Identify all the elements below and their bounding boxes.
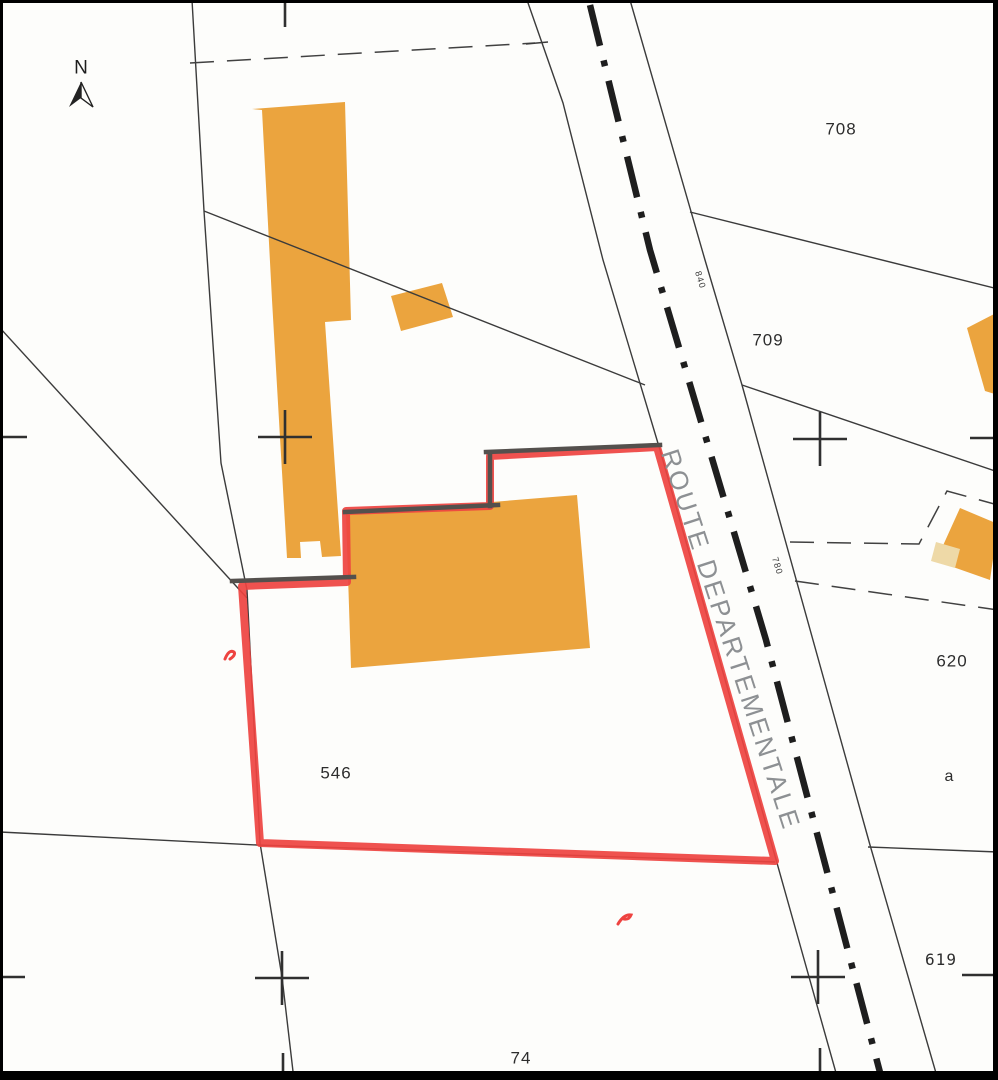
red-scribble bbox=[225, 651, 235, 659]
north-arrow-icon bbox=[69, 82, 93, 107]
main-building bbox=[346, 495, 590, 668]
buildings bbox=[252, 102, 998, 668]
cadastral-map-scan: N ROUTE DEPARTEMENTALE 840 780 708 709 6… bbox=[0, 0, 998, 1080]
map-geometry bbox=[0, 0, 998, 1080]
edge-building-620 bbox=[936, 508, 998, 580]
parcel-sublabel-a: a bbox=[945, 769, 954, 785]
parcel-label-620: 620 bbox=[936, 653, 967, 670]
parcel-label-546: 546 bbox=[320, 765, 351, 782]
barn-building bbox=[252, 102, 351, 558]
parcel-label-74: 74 bbox=[511, 1050, 532, 1067]
red-scribbles bbox=[225, 651, 631, 924]
parcel-label-619: 619 bbox=[925, 952, 957, 968]
north-label: N bbox=[74, 59, 88, 78]
red-scribble bbox=[618, 915, 631, 924]
small-outbuilding bbox=[391, 283, 453, 331]
parcel-label-708: 708 bbox=[825, 121, 856, 138]
road-edges bbox=[527, 0, 938, 1080]
parcel-label-709: 709 bbox=[752, 332, 783, 349]
